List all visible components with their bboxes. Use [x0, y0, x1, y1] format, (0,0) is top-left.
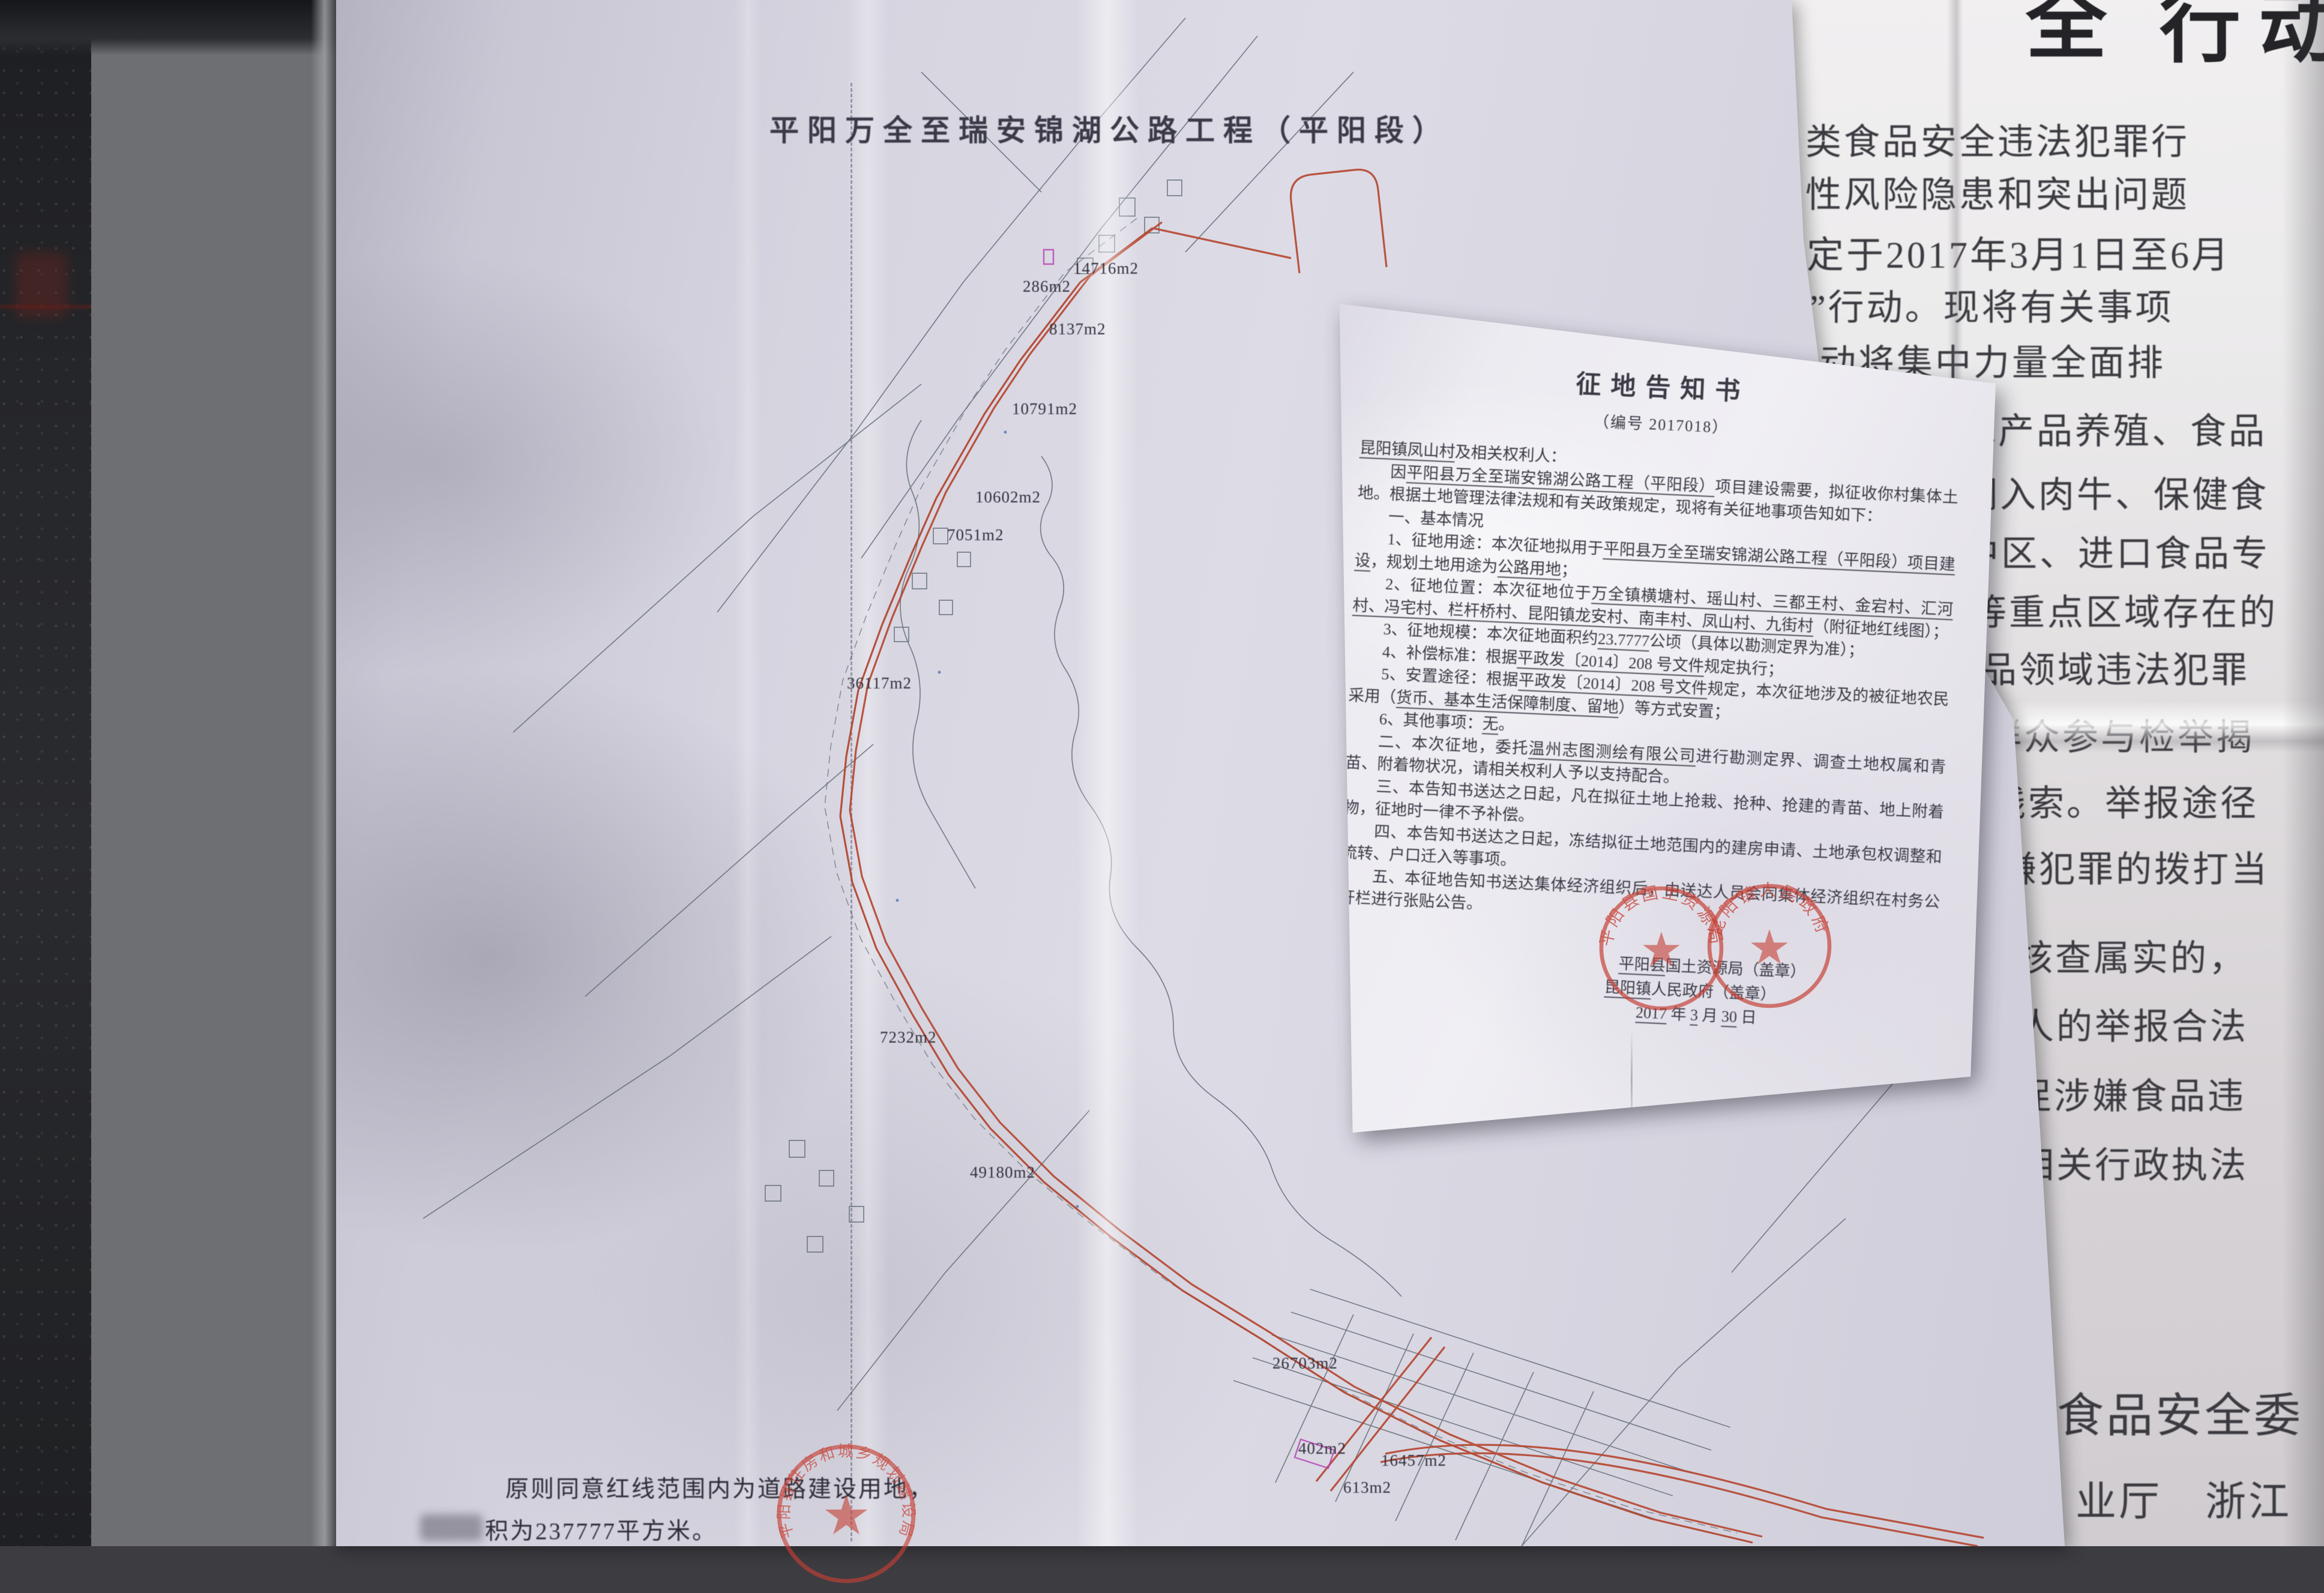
plain-text: 4、补偿标准：根据 [1382, 642, 1517, 666]
underlined-text: 昆阳镇凤山村 [1359, 438, 1456, 462]
land-expropriation-notice: 征地告知书 （编号 2017018） 昆阳镇凤山村及相关权利人：因平阳县万全至瑞… [1335, 285, 1996, 1133]
underlined-text: 无 [1482, 714, 1499, 735]
plain-text: ； [1561, 560, 1577, 579]
plain-text: （附征地红线图）； [1813, 617, 1949, 641]
plain-text: 规定执行； [1703, 657, 1784, 678]
notice-content: 征地告知书 （编号 2017018） 昆阳镇凤山村及相关权利人：因平阳县万全至瑞… [1339, 323, 1965, 936]
notice-sheet-wrapper: 征地告知书 （编号 2017018） 昆阳镇凤山村及相关权利人：因平阳县万全至瑞… [0, 0, 2324, 1546]
stamp-star-icon: ★ [1640, 924, 1683, 977]
underlined-text: 23.7777 [1597, 630, 1650, 652]
plain-text: 因 [1390, 462, 1407, 481]
plain-text: 5、安置途径：根据 [1381, 664, 1519, 688]
stamp-star-icon: ★ [1748, 922, 1791, 975]
plain-text: 一、基本情况 [1388, 507, 1484, 529]
notice-paragraphs: 昆阳镇凤山村及相关权利人：因平阳县万全至瑞安锦湖公路工程（平阳段）项目建设需要，… [1339, 436, 1960, 936]
plain-text: 。 [1498, 715, 1515, 733]
plain-text: ）等方式安置； [1618, 698, 1730, 721]
plain-text: 二、本次征地，委托 [1378, 732, 1529, 757]
underlined-text: 公路用地 [1497, 558, 1561, 580]
plain-text: 6、其他事项： [1379, 709, 1483, 732]
notice-crease [1631, 1029, 1633, 1131]
town-government-stamp: 昆阳镇人民政府 ★ [1700, 877, 1838, 1015]
plain-text: ，规划土地用途为 [1370, 552, 1498, 576]
photo-of-posted-documents: { "map_sheet": { "title": "平阳万全至瑞安锦湖公路工程… [0, 0, 2324, 1546]
plain-text: 及相关权利人： [1455, 443, 1567, 466]
